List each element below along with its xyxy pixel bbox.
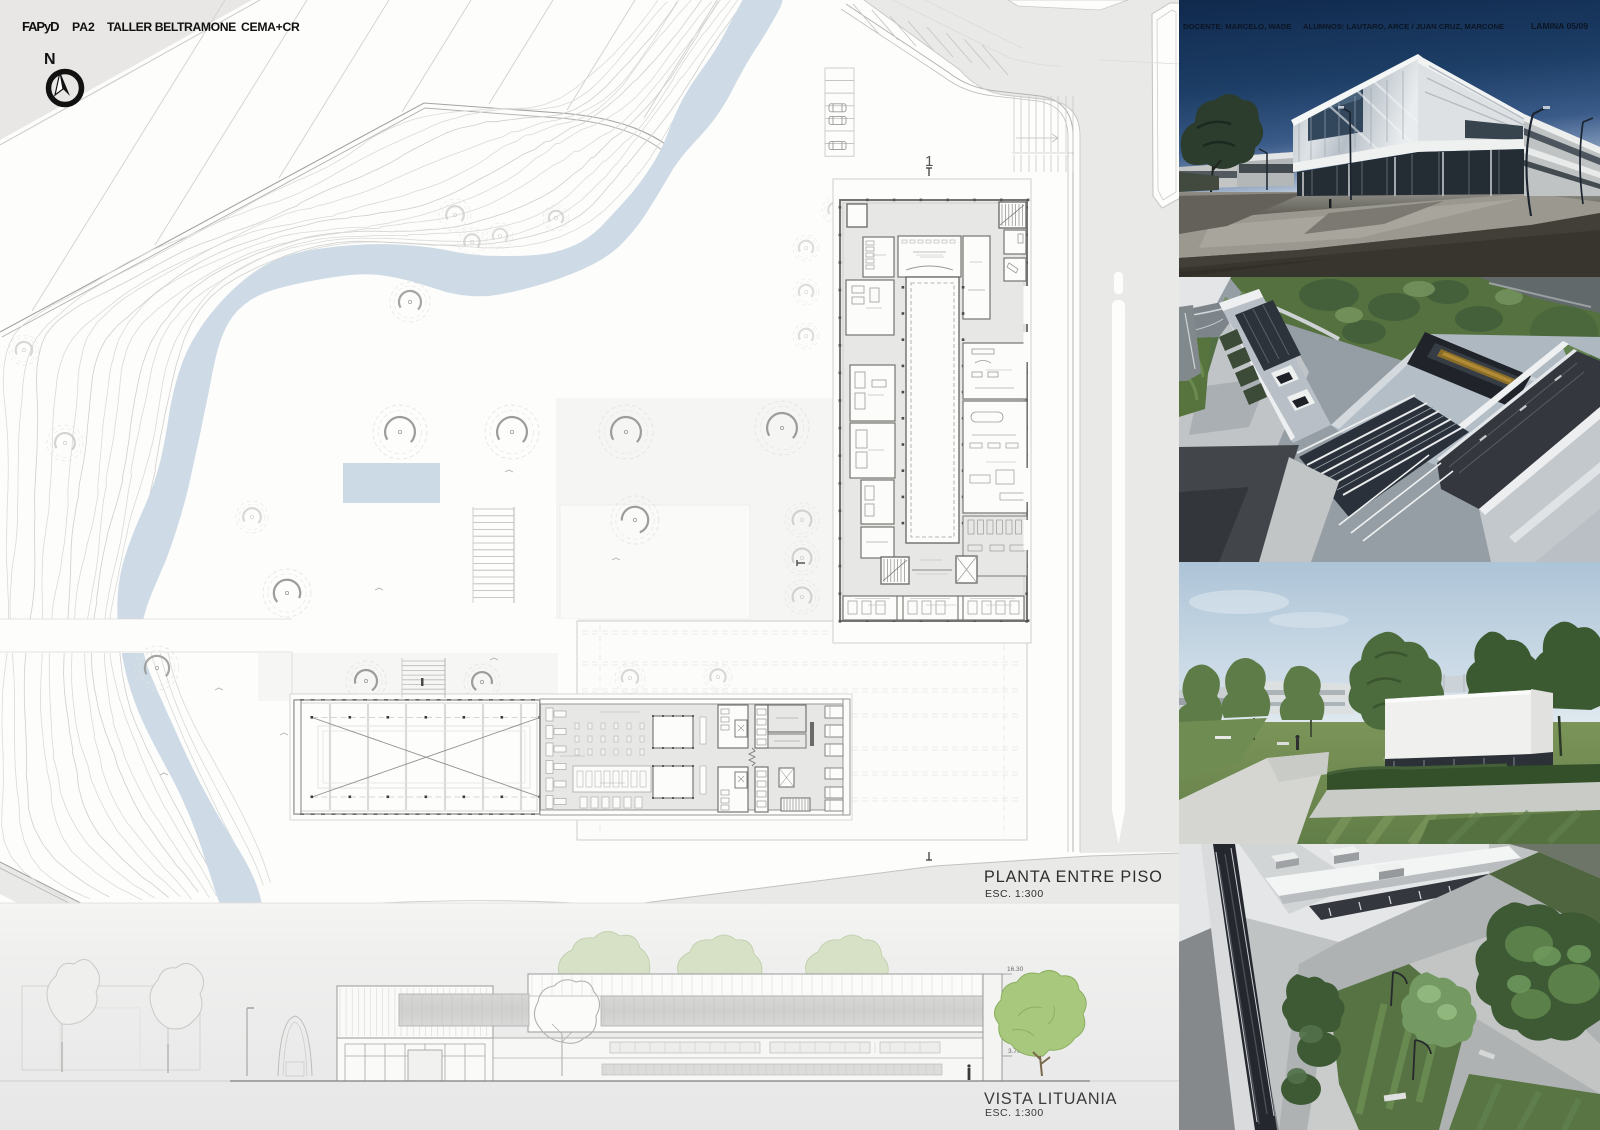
svg-text:ESC. 1:300: ESC. 1:300 xyxy=(985,1107,1044,1119)
svg-text:16.30: 16.30 xyxy=(1007,966,1024,973)
svg-text:FAPyD: FAPyD xyxy=(22,19,59,34)
svg-text:PA2: PA2 xyxy=(72,20,95,34)
svg-text:ESC. 1:300: ESC. 1:300 xyxy=(985,888,1044,900)
svg-text:PLANTA ENTRE PISO: PLANTA ENTRE PISO xyxy=(984,868,1163,886)
svg-text:TALLER BELTRAMONE: TALLER BELTRAMONE xyxy=(107,20,236,34)
svg-text:CEMA+CR: CEMA+CR xyxy=(241,20,300,34)
svg-text:ALUMNOS: LAUTARO, ARCE / JUAN: ALUMNOS: LAUTARO, ARCE / JUAN CRUZ, MARC… xyxy=(1303,22,1504,31)
svg-text:LAMINA 05/09: LAMINA 05/09 xyxy=(1531,21,1588,31)
svg-text:1: 1 xyxy=(925,153,933,170)
svg-text:VISTA LITUANIA: VISTA LITUANIA xyxy=(984,1090,1117,1108)
svg-text:DOCENTE: MARCELO, WADE: DOCENTE: MARCELO, WADE xyxy=(1183,22,1291,31)
svg-text:N: N xyxy=(44,51,56,68)
